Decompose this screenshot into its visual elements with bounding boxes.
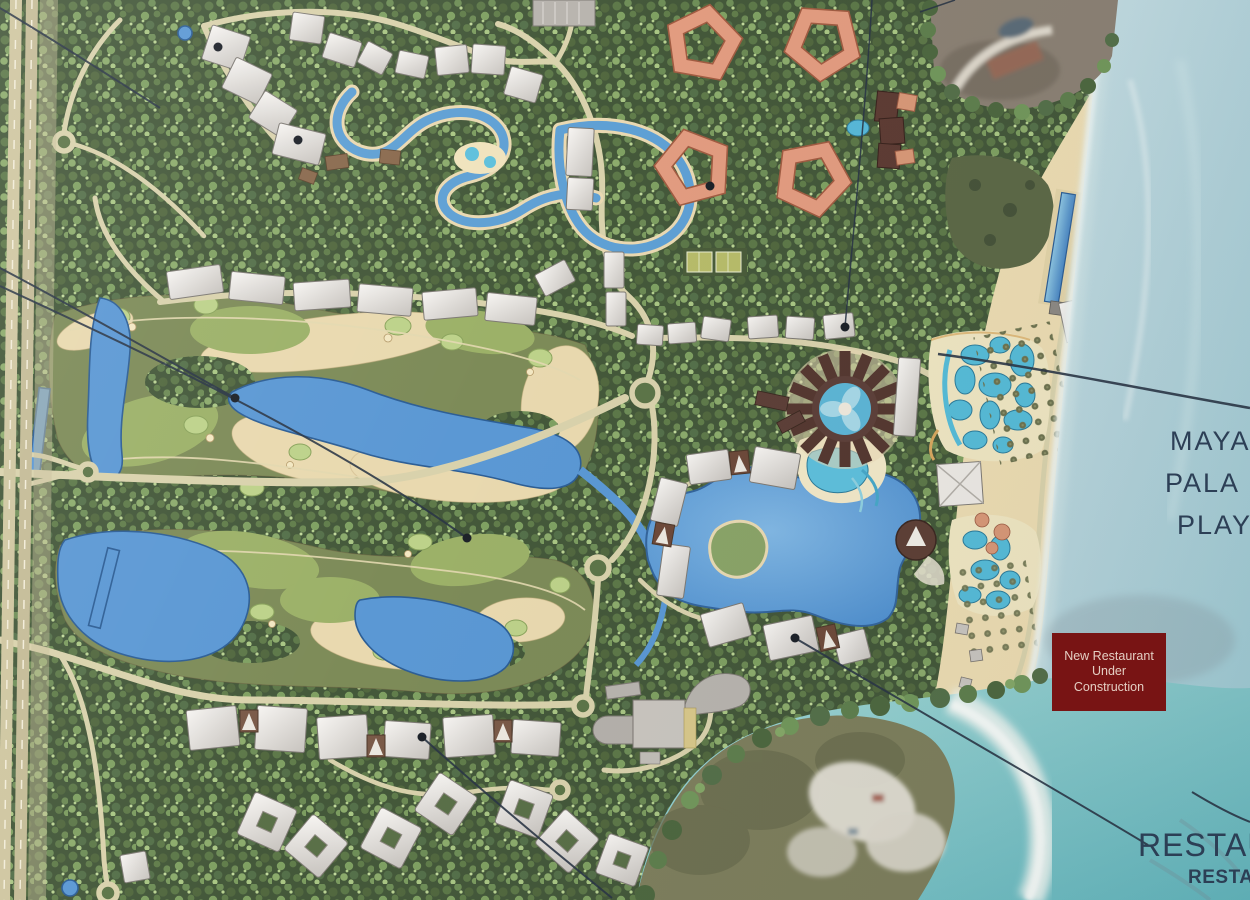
resort-name-line2: PALA bbox=[1165, 462, 1250, 504]
construction-note-line3: Construction bbox=[1074, 680, 1144, 696]
resort-master-plan-map: MAYA PALA PLAY RESTAU RESTAUR New Restau… bbox=[0, 0, 1250, 900]
resort-name-line3: PLAY bbox=[1177, 504, 1250, 546]
construction-note-line2: Under bbox=[1092, 664, 1126, 680]
resort-name-line1: MAYA bbox=[1170, 420, 1250, 462]
map-illustration bbox=[0, 0, 1250, 900]
construction-note: New Restaurant Under Construction bbox=[1052, 633, 1166, 711]
parking-structure bbox=[533, 0, 595, 26]
construction-note-line1: New Restaurant bbox=[1064, 649, 1154, 665]
spa-circle-building bbox=[785, 349, 905, 469]
pyramid-building bbox=[937, 462, 984, 507]
restaurant-sublabel: RESTAUR bbox=[1188, 867, 1250, 889]
restaurant-label: RESTAU bbox=[1138, 827, 1250, 864]
tennis-courts bbox=[683, 248, 747, 276]
resort-name-label: MAYA PALA PLAY bbox=[1170, 420, 1250, 546]
